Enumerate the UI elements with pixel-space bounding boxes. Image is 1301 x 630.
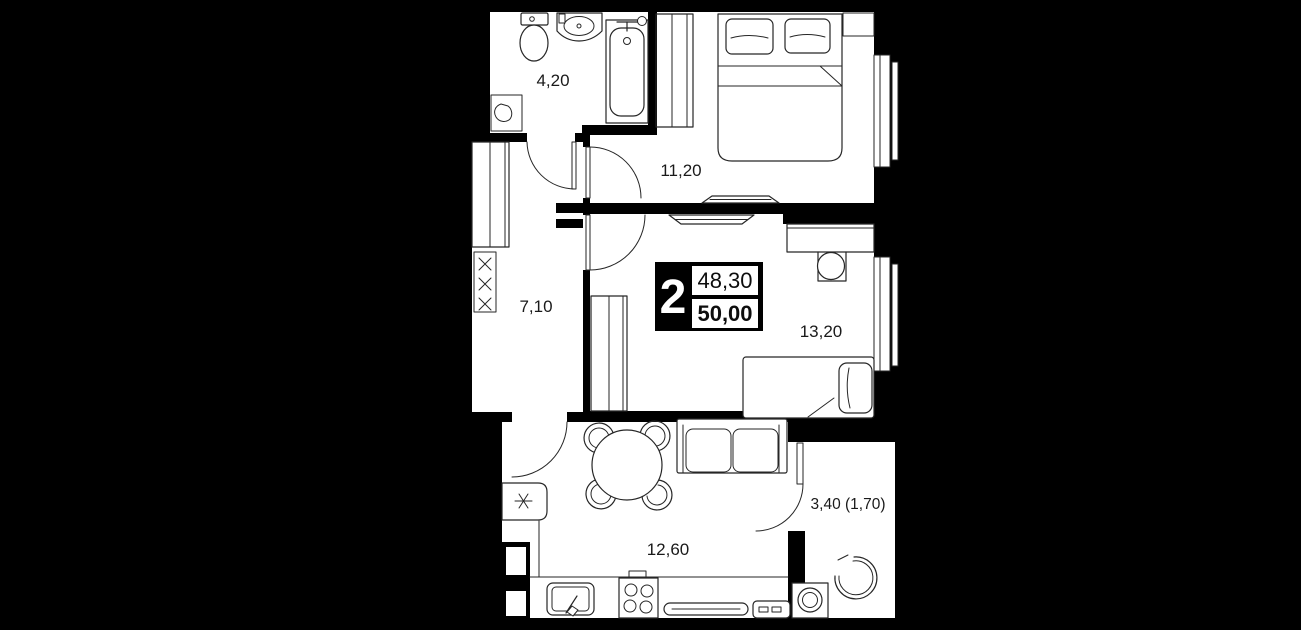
tub-faucet-knob — [638, 17, 647, 26]
balcony-area-label: 3,40 (1,70) — [811, 496, 886, 513]
bathtub — [610, 28, 644, 116]
bathroom-door-leaf — [572, 142, 576, 189]
wall-stub — [556, 203, 583, 213]
dining-table — [592, 430, 662, 500]
toilet-bowl — [520, 25, 548, 61]
sofa — [677, 419, 787, 473]
stove — [619, 578, 658, 618]
bathroom-area-label: 4,20 — [536, 71, 569, 90]
pillow — [839, 363, 872, 413]
bedroom-door-leaf — [586, 147, 590, 198]
vent-shaft — [492, 16, 509, 36]
bedroom2-area-label: 13,20 — [800, 322, 843, 341]
pillow — [726, 19, 773, 54]
wall-stub — [556, 219, 583, 228]
sofa-outline — [677, 419, 787, 473]
hallway-area-label: 7,10 — [519, 297, 552, 316]
bedroom2-window — [874, 257, 890, 371]
living-area-value: 48,30 — [697, 268, 752, 293]
kitchen-area-label: 12,60 — [647, 540, 690, 559]
rooms-count: 2 — [660, 271, 687, 324]
vent-shaft — [497, 63, 509, 70]
window-sill — [892, 62, 898, 160]
kitchen-door-opening — [512, 412, 567, 422]
desk-chair-seat — [818, 253, 845, 280]
duct-niche — [506, 591, 526, 616]
window-sill — [892, 264, 898, 366]
floor-plan-page: 4,20 11,20 7,10 13,20 12,60 3,40 (1,70) … — [0, 0, 1301, 630]
duct-niche — [506, 547, 526, 575]
info-box: 2 48,30 50,00 — [655, 262, 763, 331]
total-area-value: 50,00 — [697, 301, 752, 326]
balcony-door-leaf — [797, 443, 803, 484]
floor-plan-svg: 4,20 11,20 7,10 13,20 12,60 3,40 (1,70) … — [0, 0, 1301, 630]
bathroom-door-opening — [527, 133, 575, 142]
bedroom2-door-leaf — [586, 215, 590, 270]
hallway-floor — [472, 142, 583, 412]
bedroom-area-label: 11,20 — [660, 161, 701, 180]
vent-shaft — [495, 41, 509, 60]
bedroom-window — [874, 55, 890, 167]
